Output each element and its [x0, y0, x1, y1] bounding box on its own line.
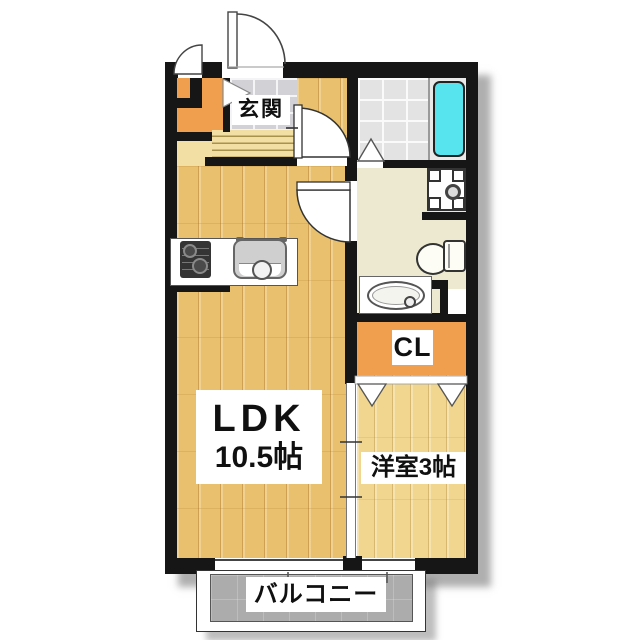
- wall-genkan-ldk: [205, 157, 297, 166]
- hall-floor: [297, 78, 347, 166]
- kitchen-sink: [233, 239, 287, 279]
- entrance-door-leaf: [228, 12, 237, 68]
- storage-door-opening: [178, 62, 202, 78]
- wall-bath-sanitary: [383, 160, 466, 168]
- stove-burner: [192, 258, 208, 274]
- wall-closet-left: [345, 322, 357, 384]
- washbasin-counter: [359, 276, 432, 314]
- washbasin: [367, 281, 425, 310]
- ldk-floor: [177, 166, 347, 558]
- wall-storage-bottom: [165, 132, 212, 141]
- entrance-label: 玄関: [232, 95, 290, 125]
- western-room-label: 洋室3帖: [361, 452, 466, 484]
- sanitary-door-opening: [345, 181, 357, 241]
- entrance-storage-floor: [177, 78, 190, 98]
- entrance-storage-floor: [202, 78, 223, 132]
- bath-door-opening: [357, 160, 383, 168]
- bathroom-tile-floor: [358, 78, 428, 162]
- wall-right: [466, 62, 478, 574]
- floorplan-page: 玄関 LDK 10.5帖 洋室3帖 CL バルコニー: [0, 0, 640, 640]
- wall-closet-top: [345, 313, 466, 322]
- closet-label: CL: [392, 330, 433, 365]
- laundry-drain: [445, 184, 461, 200]
- ldk-size: 10.5帖: [215, 442, 303, 474]
- wall-pipe-space: [440, 289, 448, 314]
- washbasin-drain: [404, 296, 416, 308]
- balcony-label-text: バルコニー: [254, 582, 379, 607]
- sink-drain: [252, 260, 272, 280]
- wall-hall-bath: [347, 78, 358, 163]
- wall-storage-inner: [177, 98, 202, 108]
- room-partition-sliding-door: [346, 383, 356, 558]
- stove-burner: [183, 244, 197, 258]
- wall-laundry-stub: [422, 212, 467, 220]
- ldk-name: LDK: [212, 400, 305, 440]
- closet-label-text: CL: [394, 333, 432, 361]
- entrance-label-text: 玄関: [238, 99, 284, 121]
- wall-genkan-left: [223, 78, 230, 132]
- kitchen-stove: [180, 241, 211, 278]
- genkan-steps: [212, 130, 297, 158]
- wall-top: [165, 62, 478, 78]
- ldk-label: LDK 10.5帖: [196, 390, 322, 484]
- bathtub-deck: [428, 78, 468, 162]
- entrance-storage-floor: [177, 108, 202, 132]
- balcony-label: バルコニー: [246, 577, 386, 612]
- entrance-door-swing-arc: [237, 14, 285, 64]
- wall-ldk-sanitary: [345, 241, 357, 314]
- pipe-space-niche: [448, 289, 466, 314]
- western-room-label-text: 洋室3帖: [371, 455, 456, 480]
- toilet-tank: [443, 240, 466, 272]
- entrance-door-opening: [222, 62, 283, 78]
- bathtub: [433, 81, 465, 157]
- washing-machine-pan: [427, 168, 466, 211]
- hall-door-opening: [297, 157, 347, 166]
